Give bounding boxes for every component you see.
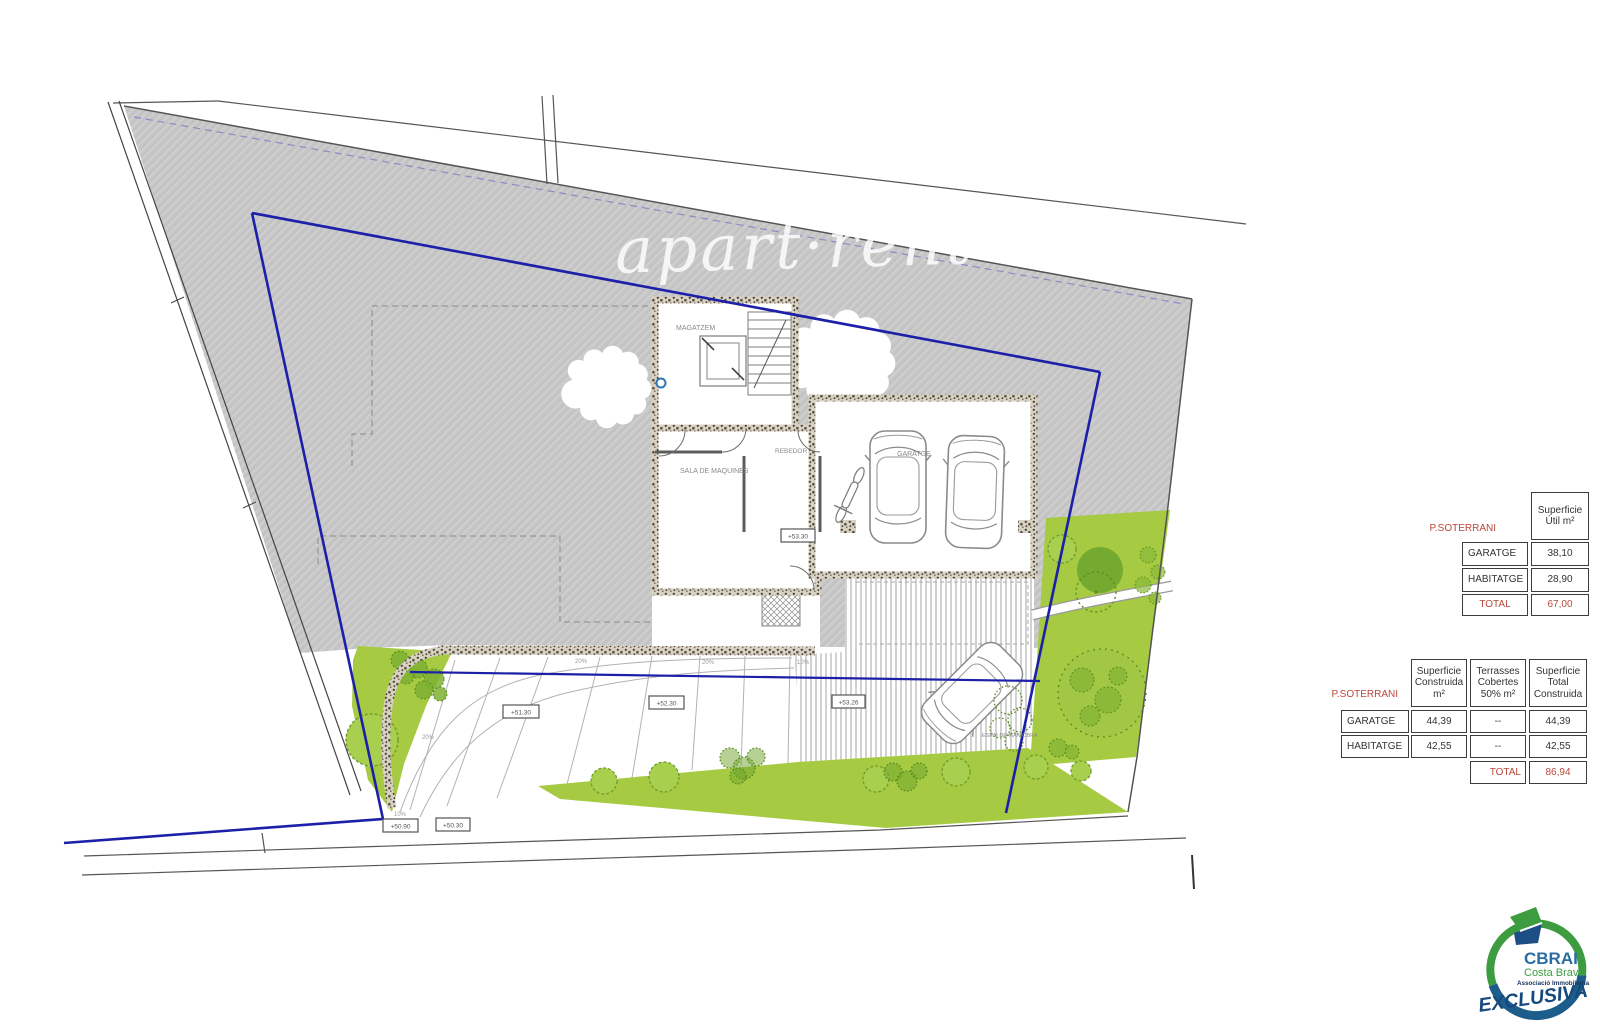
total-value: 86,94 xyxy=(1529,761,1587,784)
total-value: 67,00 xyxy=(1531,594,1589,616)
row-value: 42,55 xyxy=(1411,735,1467,758)
slope-label: 10% xyxy=(394,812,407,818)
room-label-garatge: GARATGE xyxy=(897,451,931,458)
row-value: 42,55 xyxy=(1529,735,1587,758)
row-label: GARATGE xyxy=(1341,710,1409,733)
section-label-construida: P.SOTERRANI xyxy=(1306,689,1398,700)
row-label: HABITATGE xyxy=(1462,568,1528,592)
pillar xyxy=(840,520,856,533)
elevator xyxy=(700,336,746,386)
row-value: -- xyxy=(1470,710,1526,733)
level-marker-street-1: +50.90 xyxy=(390,824,410,831)
col-header-terrasses: Terrasses Cobertes 50% m² xyxy=(1470,659,1526,707)
room-label-espai-de-maniobra: ESPAI DE MANIOBRA xyxy=(982,733,1038,739)
level-marker-street-2: +50.30 xyxy=(443,823,463,830)
row-value: 44,39 xyxy=(1529,710,1587,733)
row-label: HABITATGE xyxy=(1341,735,1409,758)
row-value: 38,10 xyxy=(1531,542,1589,566)
row-value: -- xyxy=(1470,735,1526,758)
site-plan-drawing: MAGATZEM SALA DE MAQUINES REBEDOR GARATG… xyxy=(0,0,1600,1024)
col-header-total-construida: Superficie Total Construida xyxy=(1529,659,1587,707)
slope-label: 20% xyxy=(702,660,715,666)
slope-label: 20% xyxy=(575,659,588,665)
agency-logo: CBRAI Costa Brava Associació Immobiliàri… xyxy=(1458,893,1600,1024)
level-marker-terrace-2: +52.30 xyxy=(656,701,676,708)
total-label: TOTAL xyxy=(1462,594,1528,616)
row-label: GARATGE xyxy=(1462,542,1528,566)
row-value: 44,39 xyxy=(1411,710,1467,733)
level-marker-terrace-3: +53.26 xyxy=(838,700,858,707)
row-value: 28,90 xyxy=(1531,568,1589,592)
room-label-magatzem: MAGATZEM xyxy=(676,325,715,332)
level-marker-terrace-1: +51.30 xyxy=(511,710,531,717)
section-label-util: P.SOTERRANI xyxy=(1404,523,1496,534)
col-header-superficie-util: Superficie Útil m² xyxy=(1531,492,1589,540)
site-plan-page: MAGATZEM SALA DE MAQUINES REBEDOR GARATG… xyxy=(0,0,1600,1024)
col-header-construida: Superficie Construida m² xyxy=(1411,659,1467,707)
road-lines xyxy=(82,816,1194,889)
slope-label: 20% xyxy=(422,735,435,741)
stairs xyxy=(748,312,791,395)
logo-region: Costa Brava xyxy=(1524,967,1585,979)
level-marker-building: +53.30 xyxy=(788,534,808,541)
grille xyxy=(762,594,800,626)
logo-brand: CBRAI xyxy=(1524,949,1578,968)
slope-label: 10% xyxy=(797,660,810,666)
room-label-sala-de-maquines: SALA DE MAQUINES xyxy=(680,468,749,475)
pillar xyxy=(1018,520,1034,533)
room-label-rebedor: REBEDOR xyxy=(775,448,807,455)
total-label: TOTAL xyxy=(1470,761,1526,784)
drain-symbol xyxy=(657,379,666,388)
